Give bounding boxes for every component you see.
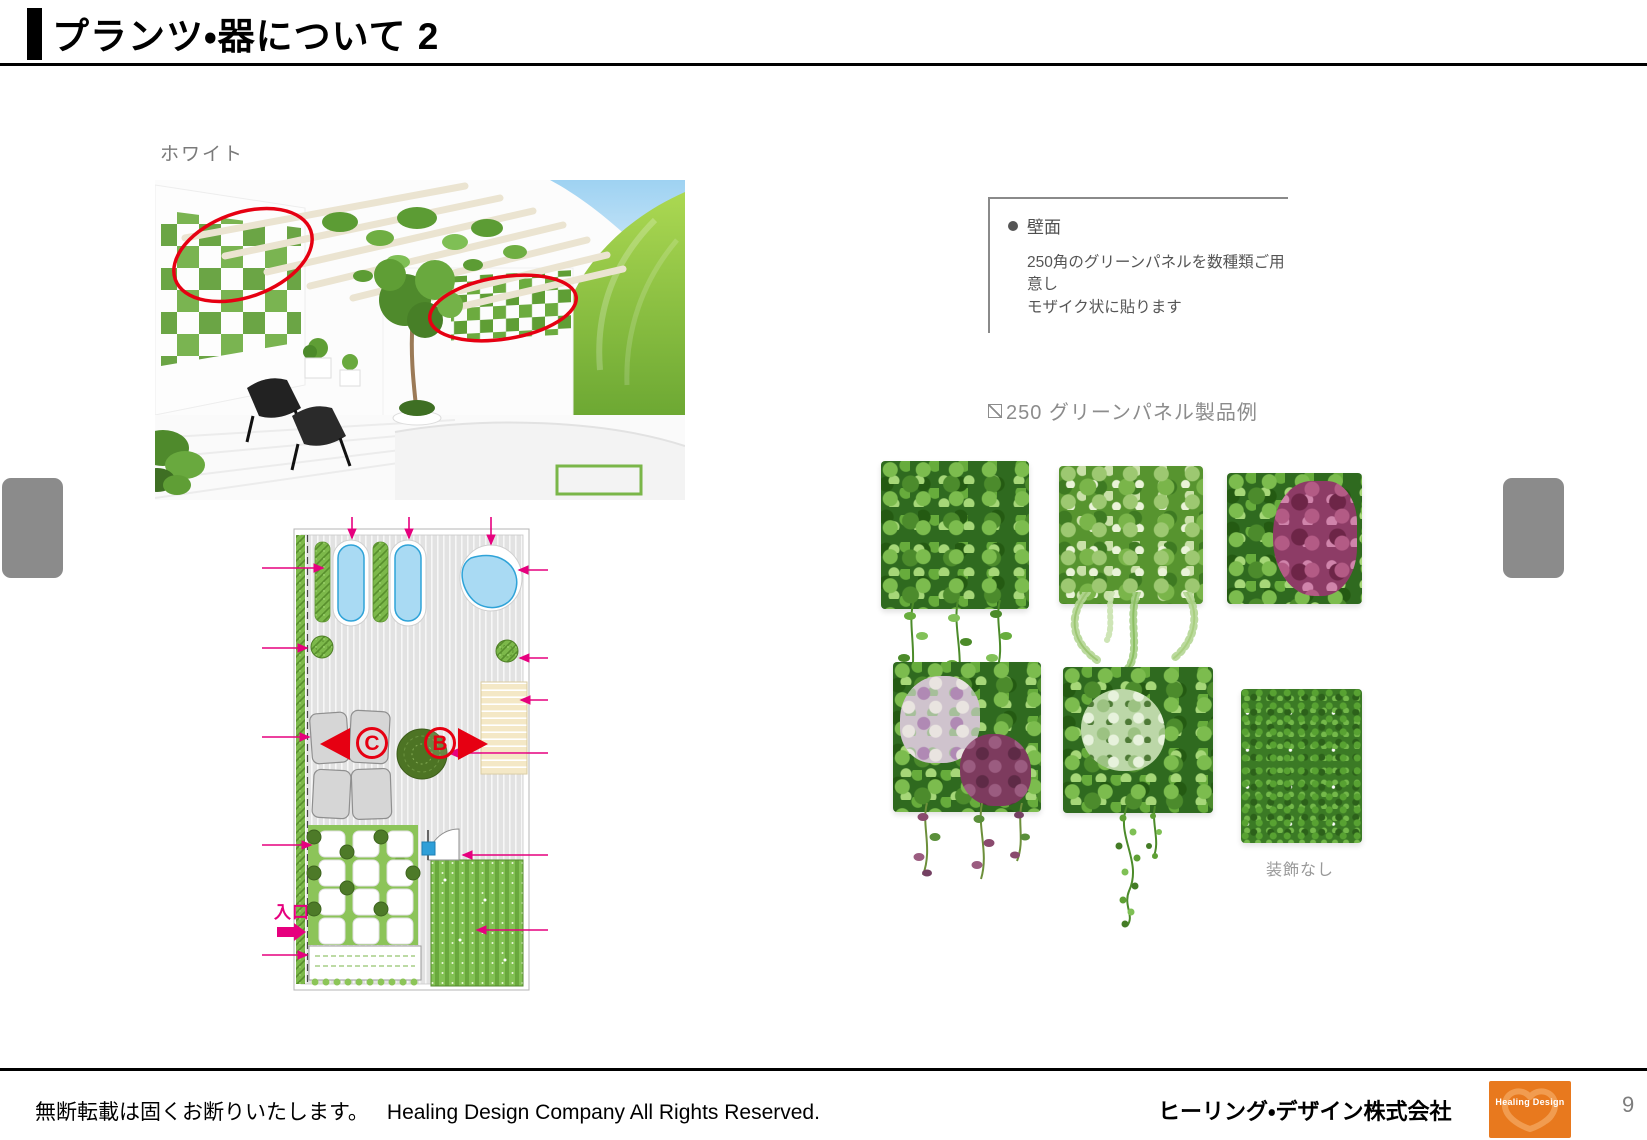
panel-caption: 装飾なし	[1266, 856, 1334, 880]
marker-c: C	[356, 727, 388, 759]
next-slide-button[interactable]	[1503, 478, 1564, 578]
page-title: プランツ・器について 2	[52, 6, 439, 60]
wall-note-line1: 250角のグリーンパネルを数種類ご用意し	[1027, 252, 1288, 297]
wall-note-heading: 壁面	[1027, 213, 1061, 238]
green-panel-image-trailing	[1063, 667, 1213, 813]
bottom-planter	[309, 946, 421, 986]
company-logo: Healing Design	[1489, 1081, 1571, 1138]
terrace-render-image	[155, 180, 685, 500]
copyright-notice-jp: 無断転載は固くお断りいたします。	[35, 1101, 369, 1124]
green-panel-image-fern	[1059, 466, 1203, 604]
fittonia-trailing-vines	[897, 803, 1047, 883]
square-diagonal-icon	[988, 404, 1002, 418]
page-number: 9	[1622, 1092, 1634, 1118]
bottom-right-garden	[431, 860, 523, 986]
prev-slide-button[interactable]	[2, 478, 63, 578]
fern-fronds	[1052, 592, 1222, 677]
bottom-left-garden	[307, 825, 420, 945]
long-hanging-vine	[1085, 806, 1205, 928]
green-panel-image-coleus	[1227, 473, 1362, 604]
green-panel-image-plain-grass	[1241, 689, 1362, 843]
marker-b: B	[424, 727, 456, 759]
products-heading: 250 グリーンパネル製品例	[988, 396, 1258, 425]
wall-note: 壁面 250角のグリーンパネルを数種類ご用意し モザイク状に貼ります	[988, 197, 1288, 333]
purple-foliage	[960, 734, 1031, 806]
round-pool	[460, 545, 522, 611]
wall-note-line2: モザイク状に貼ります	[1027, 297, 1288, 319]
copyright-notice: 無断転載は固くお断りいたします。Healing Design Company A…	[35, 1096, 820, 1126]
logo-text: Healing Design	[1489, 1097, 1571, 1107]
green-panel-image-fittonia-purple	[893, 662, 1041, 812]
green-panel-image-pothos	[881, 461, 1029, 609]
slide-page: { "header": { "title": "プランツ・器について 2" },…	[0, 0, 1647, 1140]
products-heading-text: 250 グリーンパネル製品例	[1006, 396, 1258, 425]
footer-divider	[0, 1068, 1647, 1071]
title-accent-bar	[27, 8, 42, 60]
entrance-label: 入口	[274, 898, 310, 923]
direction-right-arrow-icon	[458, 728, 488, 760]
entrance-arrow-icon	[277, 927, 294, 937]
direction-left-arrow-icon	[320, 728, 350, 760]
heart-swirl-logo-icon	[1489, 1081, 1571, 1138]
header-divider	[0, 63, 1647, 66]
variant-label: ホワイト	[160, 139, 244, 166]
coleus-purple-foliage	[1273, 481, 1357, 596]
bullet-icon	[1008, 221, 1018, 231]
white-veined-foliage	[1081, 689, 1165, 771]
copyright-notice-en: Healing Design Company All Rights Reserv…	[387, 1101, 820, 1124]
company-name: ヒーリング・デザイン株式会社	[1158, 1094, 1451, 1126]
